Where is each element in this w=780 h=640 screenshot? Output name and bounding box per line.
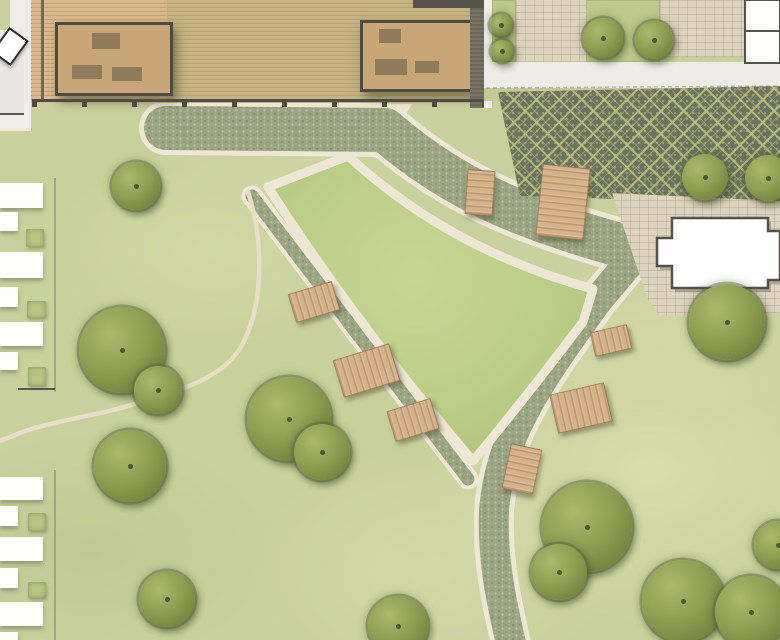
housing-edge-line — [54, 178, 56, 392]
park-tree — [583, 18, 623, 58]
east-building-footprint — [657, 218, 780, 288]
hedge-bush — [28, 582, 46, 598]
hedge-bush — [28, 367, 46, 386]
terrace-housing-block — [0, 212, 18, 231]
terrace-housing-block — [0, 477, 43, 500]
park-tree — [294, 424, 350, 480]
park-tree — [139, 571, 195, 627]
housing-separator-line — [18, 388, 55, 390]
bench — [464, 169, 495, 216]
park-tree — [531, 544, 587, 600]
park-tree — [635, 21, 673, 59]
sidewalk-joint — [486, 86, 780, 88]
terrace-housing-block — [0, 602, 43, 626]
terrace-housing-block — [0, 506, 18, 526]
site-plan-canvas — [0, 0, 780, 640]
park-tree — [112, 162, 160, 210]
terrace-housing-block — [0, 183, 43, 208]
park-tree — [490, 14, 512, 36]
park-tree — [715, 576, 780, 640]
housing-edge-line — [54, 470, 56, 640]
terrace-housing-block — [0, 632, 18, 640]
terrace-housing-block — [0, 568, 18, 588]
hedge-bush — [27, 301, 46, 318]
terrace-housing-block — [0, 537, 43, 561]
terrace-housing-block — [0, 287, 18, 307]
park-tree — [642, 560, 724, 640]
terrace-housing-block — [0, 352, 18, 370]
park-tree — [491, 40, 513, 62]
park-tree — [689, 284, 765, 360]
park-tree — [682, 154, 728, 200]
hedge-bush — [26, 229, 44, 247]
terrace-housing-block — [0, 252, 43, 278]
hedge-bush — [28, 513, 46, 531]
park-tree — [94, 430, 166, 502]
terrace-housing-block — [0, 322, 43, 346]
bench — [535, 164, 590, 241]
park-tree — [134, 366, 182, 414]
